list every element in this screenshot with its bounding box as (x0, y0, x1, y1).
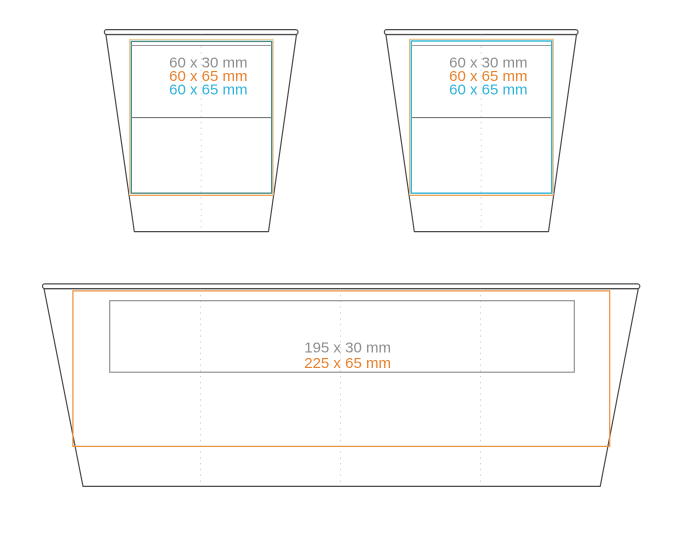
svg-text:60 x 65 mm: 60 x 65 mm (449, 82, 527, 99)
svg-text:60 x 65 mm: 60 x 65 mm (169, 82, 247, 99)
svg-text:225 x 65 mm: 225 x 65 mm (304, 355, 391, 372)
